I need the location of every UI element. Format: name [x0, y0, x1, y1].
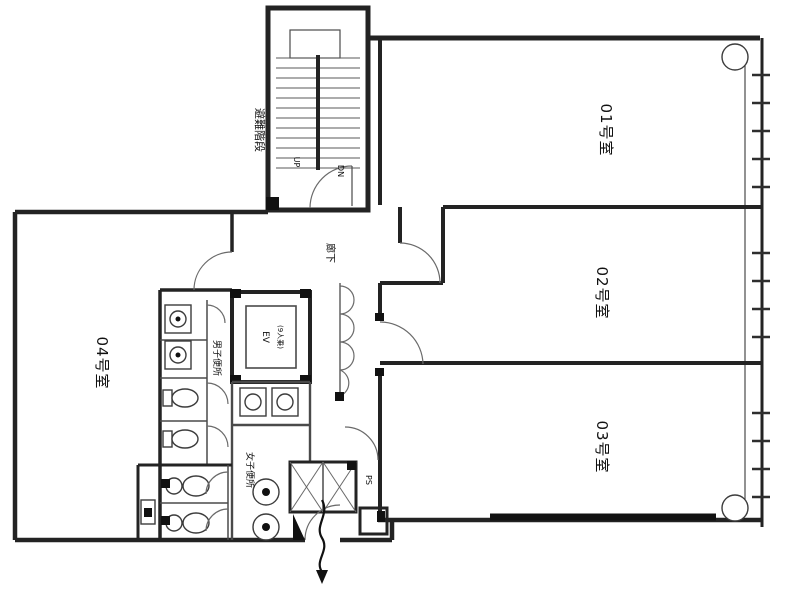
mens-toilet-label: 男子便所 [211, 340, 223, 376]
wash-basin [245, 394, 261, 410]
wall-cap [230, 289, 241, 298]
wall-cap [161, 516, 170, 525]
column-circle [722, 44, 748, 70]
stair-landing [290, 30, 340, 58]
floor-plan: UP DN 避難階段 01号室 02号室 03号室 04号室 [0, 0, 787, 592]
room-03-door-arc [345, 427, 378, 460]
toilet-bowl [183, 476, 209, 496]
stair-down-label: DN [336, 165, 345, 177]
fixture-dot [176, 317, 181, 322]
toilet-bowl [183, 513, 209, 533]
fixture-dot [176, 353, 181, 358]
room-02-label: 02号室 [593, 266, 611, 319]
fixture-dot [262, 523, 270, 531]
column-circle [722, 495, 748, 521]
toilet-tank [163, 431, 172, 447]
entrance-arrow-head [316, 570, 328, 584]
corridor-scallops [340, 286, 354, 396]
elevator-cab [246, 306, 296, 368]
wall-cap [347, 461, 356, 470]
toilet-tank [163, 390, 172, 406]
womens-toilet-label: 女子便所 [244, 452, 256, 488]
pipe-shaft-label: PS [364, 475, 373, 485]
entrance-door-leaf [293, 514, 305, 540]
wall-cap [375, 368, 384, 376]
room-01-label: 01号室 [597, 103, 615, 156]
wall-cap [266, 197, 279, 210]
womens-toilet-area: 女子便所 [138, 452, 279, 540]
wall-cap [377, 511, 385, 522]
wash-basin [277, 394, 293, 410]
corridor-label: 廊下 [324, 243, 337, 263]
room-04-label: 04号室 [93, 336, 111, 389]
stairwell: UP DN [266, 8, 368, 210]
room-03-label: 03号室 [593, 420, 611, 473]
elevator-shaft: EV (9人乗) [230, 289, 311, 384]
pipe-shaft-small [360, 508, 387, 534]
fixture-dot [144, 508, 152, 517]
wall-cap [375, 313, 384, 321]
toilet-bowl [172, 430, 198, 448]
mens-toilet-area: 男子便所 [160, 300, 228, 465]
wall-cap [161, 479, 170, 488]
room-block-walls [368, 38, 762, 527]
floor-plan-drawing: UP DN 避難階段 01号室 02号室 03号室 04号室 [0, 0, 787, 592]
wall-cap [335, 392, 344, 401]
fixture-dot [262, 488, 270, 496]
wall-cap [300, 289, 311, 298]
elevator-capacity-label: (9人乗) [276, 325, 285, 349]
stairs-label: 避難階段 [253, 108, 267, 152]
stair-up-label: UP [292, 157, 301, 168]
room-02-door-arc [380, 322, 423, 364]
toilet-bowl [172, 389, 198, 407]
elevator-label: EV [260, 331, 270, 344]
room-04-door-arc [194, 252, 232, 290]
hall-door-arc [400, 243, 440, 283]
entrance-door-arc [305, 505, 340, 540]
